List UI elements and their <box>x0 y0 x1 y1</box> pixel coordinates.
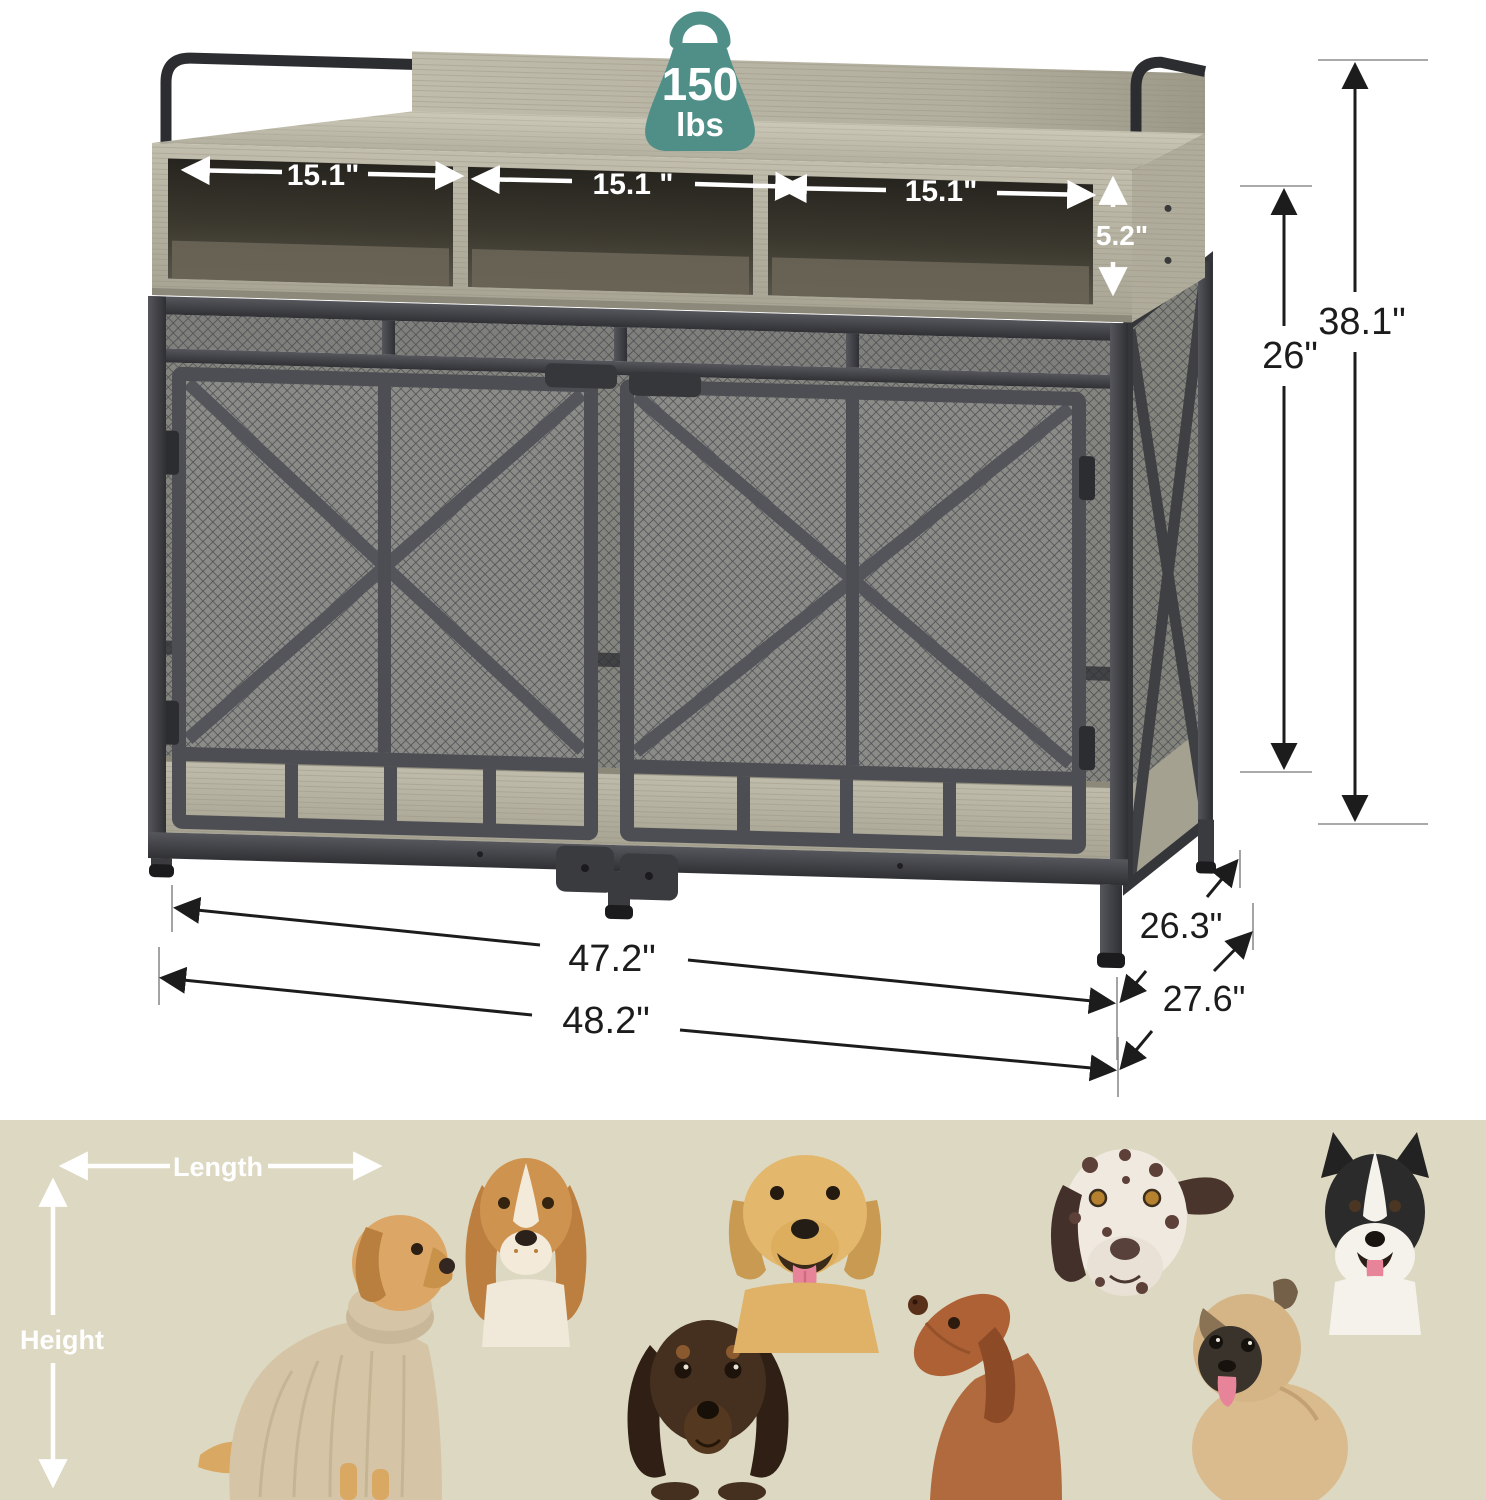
overall-height-dimension: 38.1" <box>1318 60 1428 824</box>
yellow-labrador-photo <box>729 1155 881 1353</box>
weight-capacity-badge: 150 lbs <box>645 18 755 151</box>
right-door-hinge <box>1079 726 1095 770</box>
top-hinge-plate <box>545 363 617 389</box>
border-collie-photo <box>1321 1132 1429 1335</box>
inner-width-label: 47.2" <box>568 938 655 980</box>
dog-size-guide-strip: Length Height <box>0 1120 1486 1500</box>
crate-side-panel <box>1128 259 1216 887</box>
front-left-post <box>148 296 166 859</box>
inner-depth-label: 26.3" <box>1140 905 1223 946</box>
overall-width-label: 48.2" <box>562 1000 649 1042</box>
cubby-1-label: 15.1" <box>287 159 360 192</box>
cubby-2-label: 15.1 " <box>593 168 674 201</box>
dog-crate-illustration: 150 lbs 15.1" 15.1 " 15.1" 5.2" 38.1" 26… <box>0 0 1486 1120</box>
back-right-post <box>1198 261 1212 821</box>
top-hinge-plate <box>629 371 701 397</box>
front-right-leg <box>1100 885 1122 958</box>
badge-handle <box>676 18 724 42</box>
right-door-hinge <box>1079 456 1095 500</box>
height-label: Height <box>20 1325 104 1355</box>
back-right-leg <box>1198 819 1214 865</box>
cubby-height-label: 5.2" <box>1096 220 1148 251</box>
inner-height-dimension: 26" <box>1240 186 1318 772</box>
badge-value: 150 <box>662 58 739 110</box>
overall-depth-label: 27.6" <box>1163 978 1246 1019</box>
center-leg <box>608 871 630 910</box>
cubby-3-label: 15.1" <box>905 175 978 208</box>
front-right-post <box>1110 323 1128 886</box>
overall-height-label: 38.1" <box>1318 301 1405 343</box>
inner-height-label: 26" <box>1262 335 1318 377</box>
length-label: Length <box>173 1152 263 1182</box>
product-dimension-sheet: 150 lbs 15.1" 15.1 " 15.1" 5.2" 38.1" 26… <box>0 0 1486 1500</box>
badge-unit: lbs <box>676 106 724 143</box>
